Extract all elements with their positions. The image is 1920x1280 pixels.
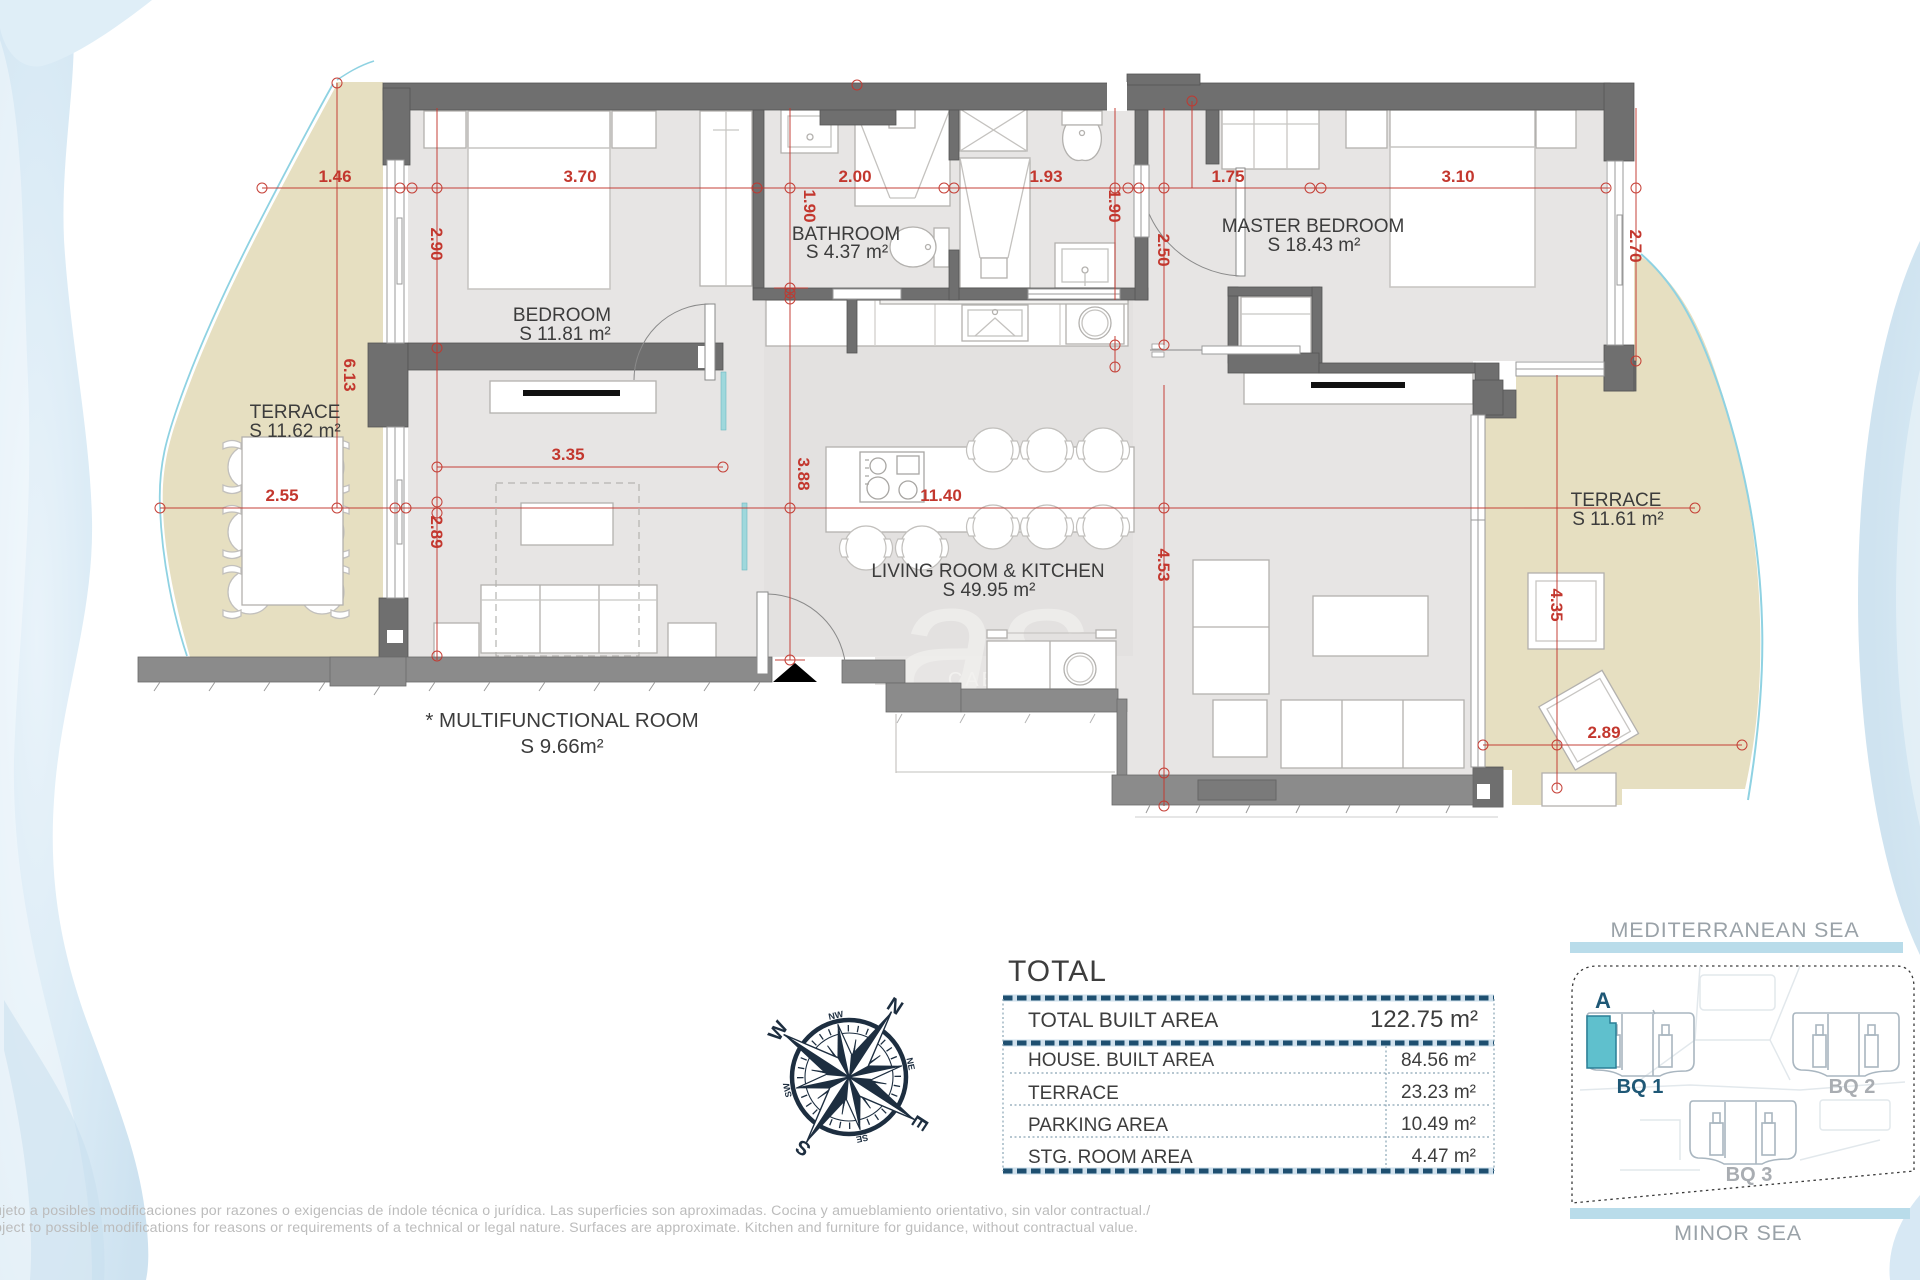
- svg-text:2.89: 2.89: [1587, 723, 1620, 742]
- svg-text:STG. ROOM AREA: STG. ROOM AREA: [1028, 1147, 1193, 1168]
- svg-text:MEDITERRANEAN SEA: MEDITERRANEAN SEA: [1611, 918, 1860, 942]
- svg-text:N: N: [883, 993, 907, 1019]
- svg-text:bject to possible modification: bject to possible modifications for reas…: [0, 1220, 1138, 1236]
- svg-text:2.89: 2.89: [427, 515, 446, 548]
- svg-text:* MULTIFUNCTIONAL ROOM: * MULTIFUNCTIONAL ROOM: [425, 709, 698, 732]
- svg-text:1.90: 1.90: [1105, 189, 1124, 222]
- svg-text:2.70: 2.70: [1626, 229, 1645, 262]
- svg-text:MINOR SEA: MINOR SEA: [1674, 1221, 1802, 1245]
- svg-text:S 11.61 m²: S 11.61 m²: [1572, 509, 1664, 530]
- svg-text:11.40: 11.40: [920, 486, 962, 505]
- svg-text:S: S: [792, 1135, 815, 1161]
- svg-text:ujeto a posibles modificacione: ujeto a posibles modificaciones por razo…: [0, 1203, 1150, 1219]
- svg-text:4.53: 4.53: [1154, 548, 1173, 581]
- svg-text:BEDROOM: BEDROOM: [513, 305, 611, 326]
- svg-text:1.93: 1.93: [1029, 167, 1062, 186]
- svg-text:TOTAL BUILT AREA: TOTAL BUILT AREA: [1028, 1009, 1218, 1032]
- svg-text:23.23 m²: 23.23 m²: [1401, 1082, 1476, 1103]
- svg-text:E: E: [907, 1111, 933, 1134]
- svg-text:1.75: 1.75: [1211, 167, 1244, 186]
- svg-text:2.00: 2.00: [838, 167, 871, 186]
- svg-text:10.49 m²: 10.49 m²: [1401, 1114, 1476, 1135]
- svg-text:S 18.43 m²: S 18.43 m²: [1268, 235, 1361, 256]
- svg-text:1.90: 1.90: [800, 189, 819, 222]
- svg-text:TERRACE: TERRACE: [1571, 490, 1662, 511]
- svg-text:S 4.37 m²: S 4.37 m²: [806, 242, 888, 263]
- svg-text:TOTAL: TOTAL: [1008, 955, 1107, 988]
- svg-text:3.35: 3.35: [551, 445, 584, 464]
- svg-text:W: W: [764, 1017, 793, 1045]
- svg-text:BQ 2: BQ 2: [1829, 1076, 1876, 1098]
- svg-text:3.70: 3.70: [563, 167, 596, 186]
- svg-text:PARKING AREA: PARKING AREA: [1028, 1115, 1168, 1136]
- svg-text:2.90: 2.90: [427, 227, 446, 260]
- svg-text:4.47 m²: 4.47 m²: [1412, 1146, 1476, 1167]
- svg-text:HOUSE. BUILT AREA: HOUSE. BUILT AREA: [1028, 1050, 1215, 1071]
- svg-text:BQ 1: BQ 1: [1617, 1076, 1664, 1098]
- svg-text:1.46: 1.46: [318, 167, 351, 186]
- svg-text:122.75 m²: 122.75 m²: [1370, 1006, 1478, 1033]
- svg-text:S 49.95 m²: S 49.95 m²: [943, 580, 1036, 601]
- svg-text:TERRACE: TERRACE: [250, 402, 341, 423]
- svg-text:S 9.66m²: S 9.66m²: [520, 735, 603, 758]
- svg-text:LIVING ROOM & KITCHEN: LIVING ROOM & KITCHEN: [871, 561, 1104, 582]
- svg-text:S 11.62 m²: S 11.62 m²: [249, 421, 341, 442]
- svg-text:S 11.81 m²: S 11.81 m²: [519, 324, 611, 345]
- svg-text:TERRACE: TERRACE: [1028, 1083, 1119, 1104]
- svg-text:BQ 3: BQ 3: [1726, 1164, 1773, 1186]
- svg-text:84.56 m²: 84.56 m²: [1401, 1050, 1476, 1071]
- svg-text:2.50: 2.50: [1154, 233, 1173, 266]
- svg-text:3.10: 3.10: [1441, 167, 1474, 186]
- svg-text:A: A: [1595, 988, 1611, 1013]
- svg-text:6.13: 6.13: [340, 358, 359, 391]
- svg-text:MASTER BEDROOM: MASTER BEDROOM: [1222, 216, 1405, 237]
- svg-text:2.55: 2.55: [265, 486, 298, 505]
- svg-text:4.35: 4.35: [1547, 588, 1566, 621]
- svg-text:3.88: 3.88: [794, 457, 813, 490]
